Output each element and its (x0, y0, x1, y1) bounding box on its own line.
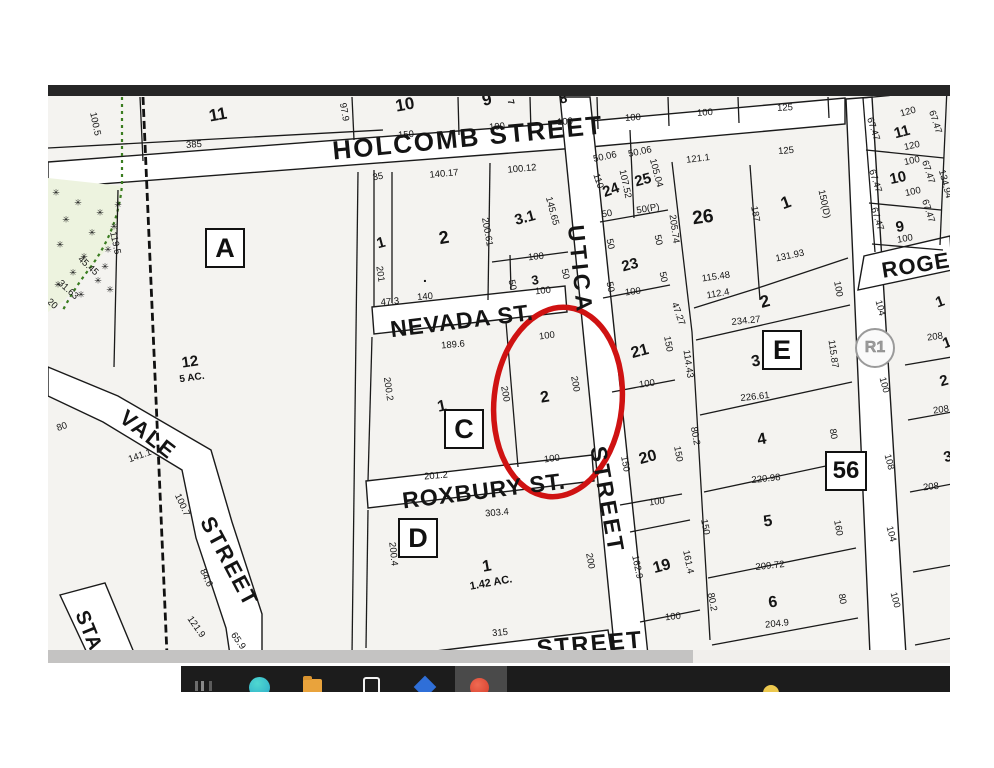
dimension-label: 50 (652, 234, 665, 247)
vegetation-icon: ✳ (114, 200, 122, 211)
dimension-label: 97.9 (337, 102, 351, 122)
dimension-label: 100 (697, 107, 714, 119)
parcel-number: 3 (750, 352, 762, 371)
dimension-label: 125 (777, 102, 793, 114)
dimension-label: 50.06 (592, 149, 618, 165)
parcel-number: 5 (762, 512, 773, 531)
parcel-number: 3 (530, 272, 540, 288)
dimension-label: 108 (882, 453, 897, 471)
parcel-number: 1 (778, 192, 794, 214)
dimension-label: 100 (877, 376, 892, 394)
dimension-label: 162.9 (629, 554, 645, 580)
dimension-label: 201.2 (424, 469, 449, 482)
block-label-C: C (444, 409, 484, 449)
dimension-label: 67.47 (866, 168, 884, 194)
parcel-number: 10 (394, 94, 416, 117)
dimension-label: 385 (186, 139, 203, 151)
dimension-label: 100 (648, 496, 665, 509)
street-name-label: HOLCOMB STREET (331, 110, 605, 167)
parcel-number: 6 (767, 593, 778, 612)
dimension-label: 131.93 (775, 248, 806, 265)
dimension-label: 50 (601, 208, 613, 221)
vegetation-icon: ✳ (104, 245, 112, 256)
dimension-label: 234.27 (731, 314, 761, 328)
dimension-label: 100 (638, 377, 655, 390)
dimension-label: 104 (873, 299, 888, 317)
vegetation-icon: ✳ (106, 285, 114, 296)
partial-app-icon[interactable] (195, 681, 221, 691)
dimension-label: 125 (778, 145, 795, 157)
vegetation-icon: ✳ (62, 215, 70, 226)
dimension-label: 189.6 (441, 338, 466, 351)
dimension-label: 145.65 (543, 196, 561, 227)
dimension-label: 20 (48, 296, 60, 311)
dimension-label: 220.98 (751, 472, 781, 486)
dimension-label: 114.43 (681, 349, 696, 379)
block-label-E: E (762, 330, 802, 370)
parcel-number: 1 (375, 234, 387, 253)
dimension-label: 208 (923, 481, 940, 494)
dimension-label: 112.4 (706, 287, 731, 302)
blue-diamond-app-icon[interactable] (414, 676, 437, 692)
street-name-label: NEVADA ST. (389, 299, 535, 343)
dimension-label: 120 (899, 105, 917, 120)
dimension-label: 160 (831, 519, 845, 537)
parcel-number: 2 (758, 291, 772, 313)
street-name-label: STREET (194, 512, 263, 611)
zone-r1-badge: R1 (855, 328, 895, 368)
dimension-label: 84.6 (197, 567, 215, 588)
parcel-number: 11 (892, 122, 912, 143)
dimension-label: 50(P) (636, 202, 661, 217)
dimension-label: 100 (903, 154, 921, 168)
dimension-label: 200 (583, 552, 597, 570)
dimension-label: 100 (904, 185, 922, 199)
parcel-number: 2 (539, 388, 551, 407)
dimension-label: 67.47 (919, 198, 937, 224)
dimension-label: 140 (417, 291, 434, 303)
dimension-label: 50.06 (627, 144, 653, 160)
dimension-label: 100 (831, 280, 845, 298)
dimension-label: 67.47 (864, 116, 882, 142)
dimension-label: 200 (568, 375, 582, 393)
dimension-label: 150 (671, 445, 685, 463)
dimension-label: 67.47 (868, 206, 886, 232)
vegetation-icon: ✳ (56, 240, 64, 251)
dimension-label: 80 (836, 593, 849, 605)
parcel-number: 4 (756, 430, 768, 449)
dimension-label: 100 (538, 330, 555, 343)
dimension-label: 50 (604, 281, 617, 294)
parcel-number: 23 (620, 255, 641, 276)
vegetation-icon: ✳ (94, 276, 102, 287)
dimension-label: 187 (748, 205, 762, 223)
dimension-label: 35 (372, 171, 384, 184)
map-window-top-edge (48, 85, 950, 96)
folder-icon[interactable] (303, 679, 322, 692)
block-label-D: D (398, 518, 438, 558)
street-name-label: STA (70, 607, 107, 654)
scrollbar-thumb[interactable] (48, 650, 693, 663)
dimension-label: 120 (903, 139, 921, 153)
vegetation-icon: ✳ (80, 252, 88, 263)
dimension-label: 100.7 (172, 492, 192, 518)
parcel-number: 3.1 (513, 207, 538, 229)
dimension-label: 115.87 (826, 339, 841, 369)
parcel-number: 7 (506, 98, 517, 105)
parcel-number: 21 (629, 341, 651, 363)
dimension-label: 80.2 (705, 592, 719, 612)
vegetation-icon: ✳ (69, 268, 77, 279)
dimension-label: 47.3 (380, 296, 399, 309)
dimension-label: 100.12 (507, 162, 537, 175)
vegetation-icon: ✳ (110, 222, 118, 233)
dimension-label: 100 (543, 453, 560, 466)
dimension-label: 100.5 (87, 111, 103, 137)
vegetation-icon: ✳ (96, 208, 104, 219)
parcel-number: 1 (940, 334, 950, 353)
dimension-label: 205.74 (667, 214, 682, 244)
street-name-label: ROGERS (880, 242, 950, 284)
dimension-label: 121.1 (686, 152, 711, 166)
dimension-label: 200 (498, 385, 512, 403)
dimension-label: 100 (665, 611, 682, 624)
dimension-label: 104 (884, 525, 899, 543)
dimension-label: 80 (55, 420, 69, 434)
dimension-label: 47.27 (669, 301, 687, 327)
dimension-label: 50 (657, 271, 670, 284)
parcel-number: 20 (637, 447, 659, 469)
dimension-label: 200.61 (479, 217, 495, 248)
parcel-number: 12 (181, 352, 200, 371)
dimension-label: 201 (373, 265, 386, 282)
vegetation-icon: ✳ (52, 188, 60, 199)
parcel-number: . (423, 269, 427, 285)
dimension-label: 150 (698, 518, 712, 536)
parcel-number: 9 (894, 218, 905, 236)
dimension-label: 209.72 (755, 559, 785, 573)
dimension-label: 100 (528, 251, 545, 264)
red-app-icon[interactable] (470, 678, 489, 692)
screen: { "map": { "street_labels": [ {"t":"HOLC… (0, 0, 994, 768)
dimension-label: 303.4 (485, 506, 510, 519)
dimension-label: 150 (618, 455, 632, 473)
vegetation-icon: ✳ (101, 262, 109, 273)
parcel-number: 11 (207, 104, 228, 127)
map-labels-layer: 100.538597.9150100100100100125119.545.45… (48, 85, 950, 663)
dimension-label: 67.47 (919, 159, 937, 185)
parcel-number: 1.42 AC. (469, 573, 513, 592)
parcel-number: 5 AC. (179, 371, 205, 385)
lot-56-badge: 56 (825, 451, 867, 491)
parcel-number: 26 (691, 206, 715, 231)
dimension-label: 140.17 (429, 167, 459, 180)
street-name-label: UTICA (562, 224, 598, 317)
vegetation-icon: ✳ (74, 198, 82, 209)
window-outline-icon[interactable] (363, 677, 380, 692)
dimension-label: 100 (625, 112, 642, 124)
parcel-number: 19 (651, 556, 673, 578)
vegetation-icon: ✳ (77, 290, 85, 301)
taskbar (181, 666, 950, 692)
teal-app-icon[interactable] (249, 677, 270, 692)
dimension-label: 65.9 (228, 630, 248, 651)
dimension-label: 161.4 (680, 549, 696, 575)
dimension-label: 100 (624, 286, 641, 299)
dimension-label: 50 (506, 279, 519, 292)
dimension-label: 100 (888, 591, 903, 609)
parcel-number: 2 (938, 372, 950, 391)
dimension-label: 67.47 (926, 109, 944, 135)
dimension-label: 134.94 (936, 169, 950, 200)
yellow-dot-icon[interactable] (763, 685, 779, 692)
dimension-label: 150 (661, 335, 675, 353)
plat-map-view[interactable]: 100.538597.9150100100100100125119.545.45… (48, 85, 950, 663)
dimension-label: 226.61 (740, 390, 770, 404)
dimension-label: 204.9 (765, 617, 790, 630)
dimension-label: 200.2 (381, 376, 395, 401)
dimension-label: 50 (604, 238, 617, 251)
dimension-label: 315 (492, 627, 509, 639)
parcel-number: 10 (888, 168, 908, 188)
parcel-number: 2 (437, 227, 451, 249)
vegetation-icon: ✳ (54, 280, 62, 291)
parcel-number: 3 (942, 448, 950, 467)
vegetation-icon: ✳ (88, 228, 96, 239)
dimension-label: 121.9 (185, 614, 208, 640)
block-label-A: A (205, 228, 245, 268)
dimension-label: 150(D) (816, 189, 833, 220)
parcel-number: 1 (481, 557, 493, 576)
horizontal-scrollbar[interactable] (48, 650, 950, 663)
dimension-label: 208 (932, 403, 949, 416)
dimension-label: 115.48 (701, 270, 731, 285)
dimension-label: 80.2 (688, 426, 702, 446)
parcel-number: 1 (933, 293, 947, 312)
dimension-label: 80 (827, 428, 840, 440)
